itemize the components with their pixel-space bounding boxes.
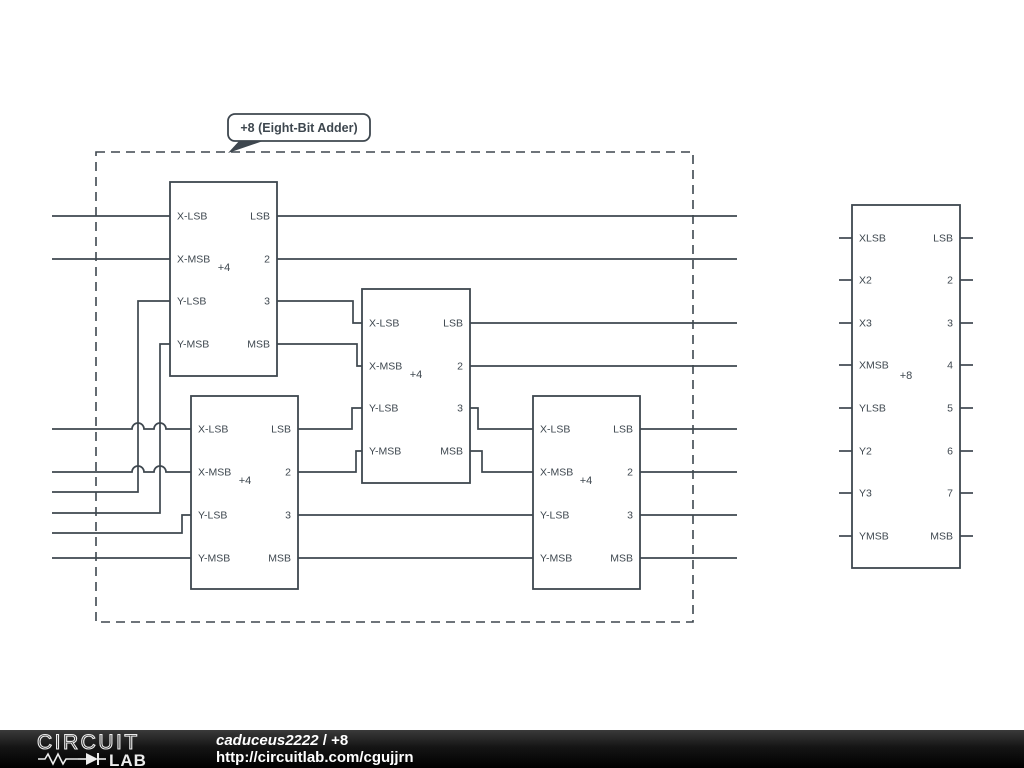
pin-label-Y-LSB: Y-LSB [177,296,206,308]
adder4-d[interactable]: X-LSBX-MSBY-LSBY-MSBLSB23MSB+4 [533,396,640,589]
pin-label-LSB: LSB [933,233,953,245]
footer-bar: CIRCUIT LAB caduceus2222 / +8 http://cir… [0,730,1024,768]
wire-mid3-to-right-x-lsb[interactable] [470,408,533,429]
pin-label-Y-MSB: Y-MSB [369,446,401,458]
wire-input-bottom-x-lsb[interactable] [52,423,191,429]
block-type-label: +4 [239,475,252,487]
pin-label-X-LSB: X-LSB [369,318,399,330]
pin-label-X-LSB: X-LSB [540,424,570,436]
schematic-svg: X-LSBX-MSBY-LSBY-MSBLSB23MSB+4X-LSBX-MSB… [0,0,1024,730]
pin-label-3: 3 [264,296,270,308]
callout-label: +8 (Eight-Bit Adder) [240,121,357,135]
pin-label-X3: X3 [859,318,872,330]
pin-label-X-LSB: X-LSB [177,211,207,223]
pin-label-YMSB: YMSB [859,531,889,543]
adder4-b[interactable]: X-LSBX-MSBY-LSBY-MSBLSB23MSB+4 [362,289,470,483]
adder4-c[interactable]: X-LSBX-MSBY-LSBY-MSBLSB23MSB+4 [191,396,298,589]
callout-annotation[interactable]: +8 (Eight-Bit Adder) [228,114,370,153]
adder4-a[interactable]: X-LSBX-MSBY-LSBY-MSBLSB23MSB+4 [170,182,277,376]
pin-label-Y3: Y3 [859,488,872,500]
schematic-byline: caduceus2222 / +8 [216,732,414,749]
pin-label-Y-MSB: Y-MSB [540,553,572,565]
wire-midmsb-to-right-x-msb[interactable] [470,451,533,472]
pin-label-XMSB: XMSB [859,360,889,372]
wire-top3-to-mid-x-lsb[interactable] [277,301,362,323]
pin-label-XLSB: XLSB [859,233,886,245]
callout-tail [228,140,266,153]
schematic-url[interactable]: http://circuitlab.com/cgujjrn [216,749,414,766]
pin-label-6: 6 [947,446,953,458]
pin-label-2: 2 [285,467,291,479]
pin-label-X-MSB: X-MSB [177,254,210,266]
schematic-canvas: X-LSBX-MSBY-LSBY-MSBLSB23MSB+4X-LSBX-MSB… [0,0,1024,730]
circuitlab-logo[interactable]: CIRCUIT LAB [36,731,186,767]
pin-label-Y-MSB: Y-MSB [198,553,230,565]
pin-label-X-MSB: X-MSB [540,467,573,479]
pin-label-LSB: LSB [250,211,270,223]
adder8-symbol-body[interactable] [852,205,960,568]
wire-bot2-to-mid-y-msb[interactable] [298,451,362,472]
block-type-label: +4 [410,369,423,381]
block-type-label: +4 [580,475,593,487]
adder8-symbol[interactable]: XLSBX2X3XMSBYLSBY2Y3YMSBLSB234567MSB+8 [839,205,973,568]
page: X-LSBX-MSBY-LSBY-MSBLSB23MSB+4X-LSBX-MSB… [0,0,1024,768]
pin-label-3: 3 [457,403,463,415]
pin-label-MSB: MSB [268,553,291,565]
pin-label-2: 2 [264,254,270,266]
pin-label-MSB: MSB [247,339,270,351]
pin-label-MSB: MSB [440,446,463,458]
diode-icon [78,753,106,765]
pin-label-Y-MSB: Y-MSB [177,339,209,351]
pin-label-MSB: MSB [930,531,953,543]
logo-lab-text: LAB [109,751,147,767]
byline-separator: / [319,732,332,749]
wire-topmsb-to-mid-x-msb[interactable] [277,344,362,366]
pin-label-2: 2 [947,275,953,287]
wire-input-top-y-lsb[interactable] [52,301,170,492]
pin-label-X-MSB: X-MSB [369,361,402,373]
pin-label-LSB: LSB [613,424,633,436]
pin-label-MSB: MSB [610,553,633,565]
pin-label-3: 3 [627,510,633,522]
schematic-title[interactable]: +8 [331,732,348,749]
pin-label-Y-LSB: Y-LSB [369,403,398,415]
wire-botlsb-to-mid-y-lsb[interactable] [298,408,362,429]
pin-label-2: 2 [627,467,633,479]
pin-label-Y-LSB: Y-LSB [540,510,569,522]
wire-input-bottom-y-lsb[interactable] [52,515,191,533]
pin-label-2: 2 [457,361,463,373]
pin-label-Y2: Y2 [859,446,872,458]
pin-label-LSB: LSB [271,424,291,436]
pin-label-3: 3 [285,510,291,522]
pin-label-X-MSB: X-MSB [198,467,231,479]
pin-label-X2: X2 [859,275,872,287]
pin-label-X-LSB: X-LSB [198,424,228,436]
resistor-icon [38,754,78,764]
block-type-label: +8 [900,370,913,382]
block-type-label: +4 [218,262,231,274]
pin-label-5: 5 [947,403,953,415]
wire-input-bottom-x-msb[interactable] [52,466,191,472]
author-name[interactable]: caduceus2222 [216,732,319,749]
footer-meta: caduceus2222 / +8 http://circuitlab.com/… [216,732,414,766]
pin-label-YLSB: YLSB [859,403,886,415]
pin-label-4: 4 [947,360,953,372]
pin-label-3: 3 [947,318,953,330]
pin-label-LSB: LSB [443,318,463,330]
pin-label-7: 7 [947,488,953,500]
pin-label-Y-LSB: Y-LSB [198,510,227,522]
